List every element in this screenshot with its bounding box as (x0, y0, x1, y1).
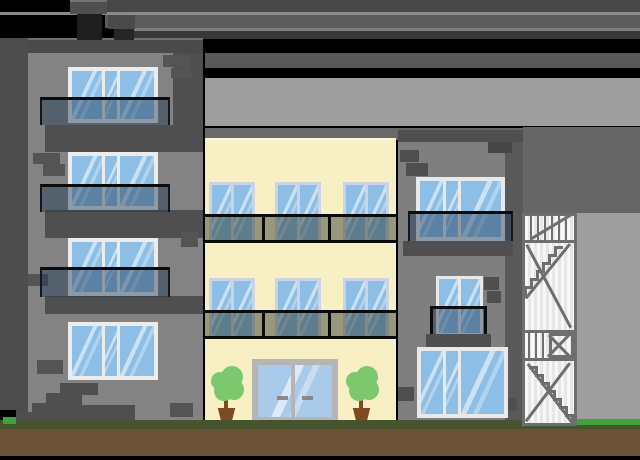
sky-block-right (523, 127, 640, 213)
window-pane (72, 326, 102, 376)
chimney-box-small (114, 29, 134, 40)
brick (484, 277, 499, 290)
glass-balcony (408, 211, 513, 243)
stair-rail-bar (522, 423, 577, 426)
brick (181, 232, 198, 247)
brick (400, 150, 419, 162)
stair-railing-bar (528, 333, 530, 358)
balcony-divider (262, 217, 265, 240)
balcony-band (205, 310, 396, 339)
sky-band-darker (133, 31, 640, 39)
sky-band-mid (105, 15, 640, 28)
brick (33, 153, 60, 164)
entry-step (16, 412, 62, 420)
foliage-blob (359, 379, 379, 400)
sky-band-gray (205, 53, 640, 68)
entrance-door (252, 359, 338, 420)
chimney-cap (70, 0, 107, 14)
window (68, 322, 158, 380)
balcony-divider (328, 313, 331, 336)
balcony-band (205, 214, 396, 243)
floor-slab (45, 296, 203, 314)
brick (170, 403, 193, 417)
door-handle (302, 396, 313, 400)
balcony-slab (403, 241, 513, 256)
left-building-roof (28, 38, 203, 53)
balcony-divider (328, 217, 331, 240)
window-pane (446, 351, 458, 414)
brick (488, 142, 512, 153)
door-divider (291, 365, 295, 417)
foliage-blob (224, 379, 244, 400)
tree-foliage (346, 366, 379, 403)
window-pane (461, 351, 504, 414)
left-building-side-column (0, 38, 28, 420)
chimney-box (108, 15, 135, 29)
window (417, 347, 508, 418)
floor-slab (45, 210, 203, 238)
brick (37, 360, 63, 374)
door-handle (277, 396, 288, 400)
glass-balcony (40, 267, 170, 297)
brick (406, 163, 428, 176)
glass-balcony (40, 97, 170, 125)
stair-railing-bar (542, 333, 544, 358)
grass-sprout (3, 417, 16, 424)
door-glass (258, 365, 332, 417)
soil (0, 429, 640, 456)
brick (398, 387, 414, 401)
stair-railing-bar (535, 333, 537, 358)
right-building-roof (398, 128, 523, 142)
chimney-stack (77, 14, 102, 40)
railing-balcony (430, 306, 487, 337)
brick (43, 164, 65, 176)
balcony-divider (262, 313, 265, 336)
window-pane (105, 326, 117, 376)
window-pane (120, 326, 154, 376)
brick (163, 55, 191, 67)
stair-step-riser (524, 286, 527, 297)
sky-right-of-stairs (577, 213, 640, 420)
brick (171, 68, 191, 78)
illustration-stage (0, 0, 640, 460)
tree-foliage (211, 366, 244, 403)
floor-slab (45, 125, 203, 152)
sky-band-light (205, 78, 640, 126)
window-pane (421, 351, 443, 414)
glass-balcony (40, 184, 170, 212)
stair-step-riser (571, 414, 574, 425)
brick (487, 291, 501, 303)
grass-bright-right (577, 419, 640, 425)
